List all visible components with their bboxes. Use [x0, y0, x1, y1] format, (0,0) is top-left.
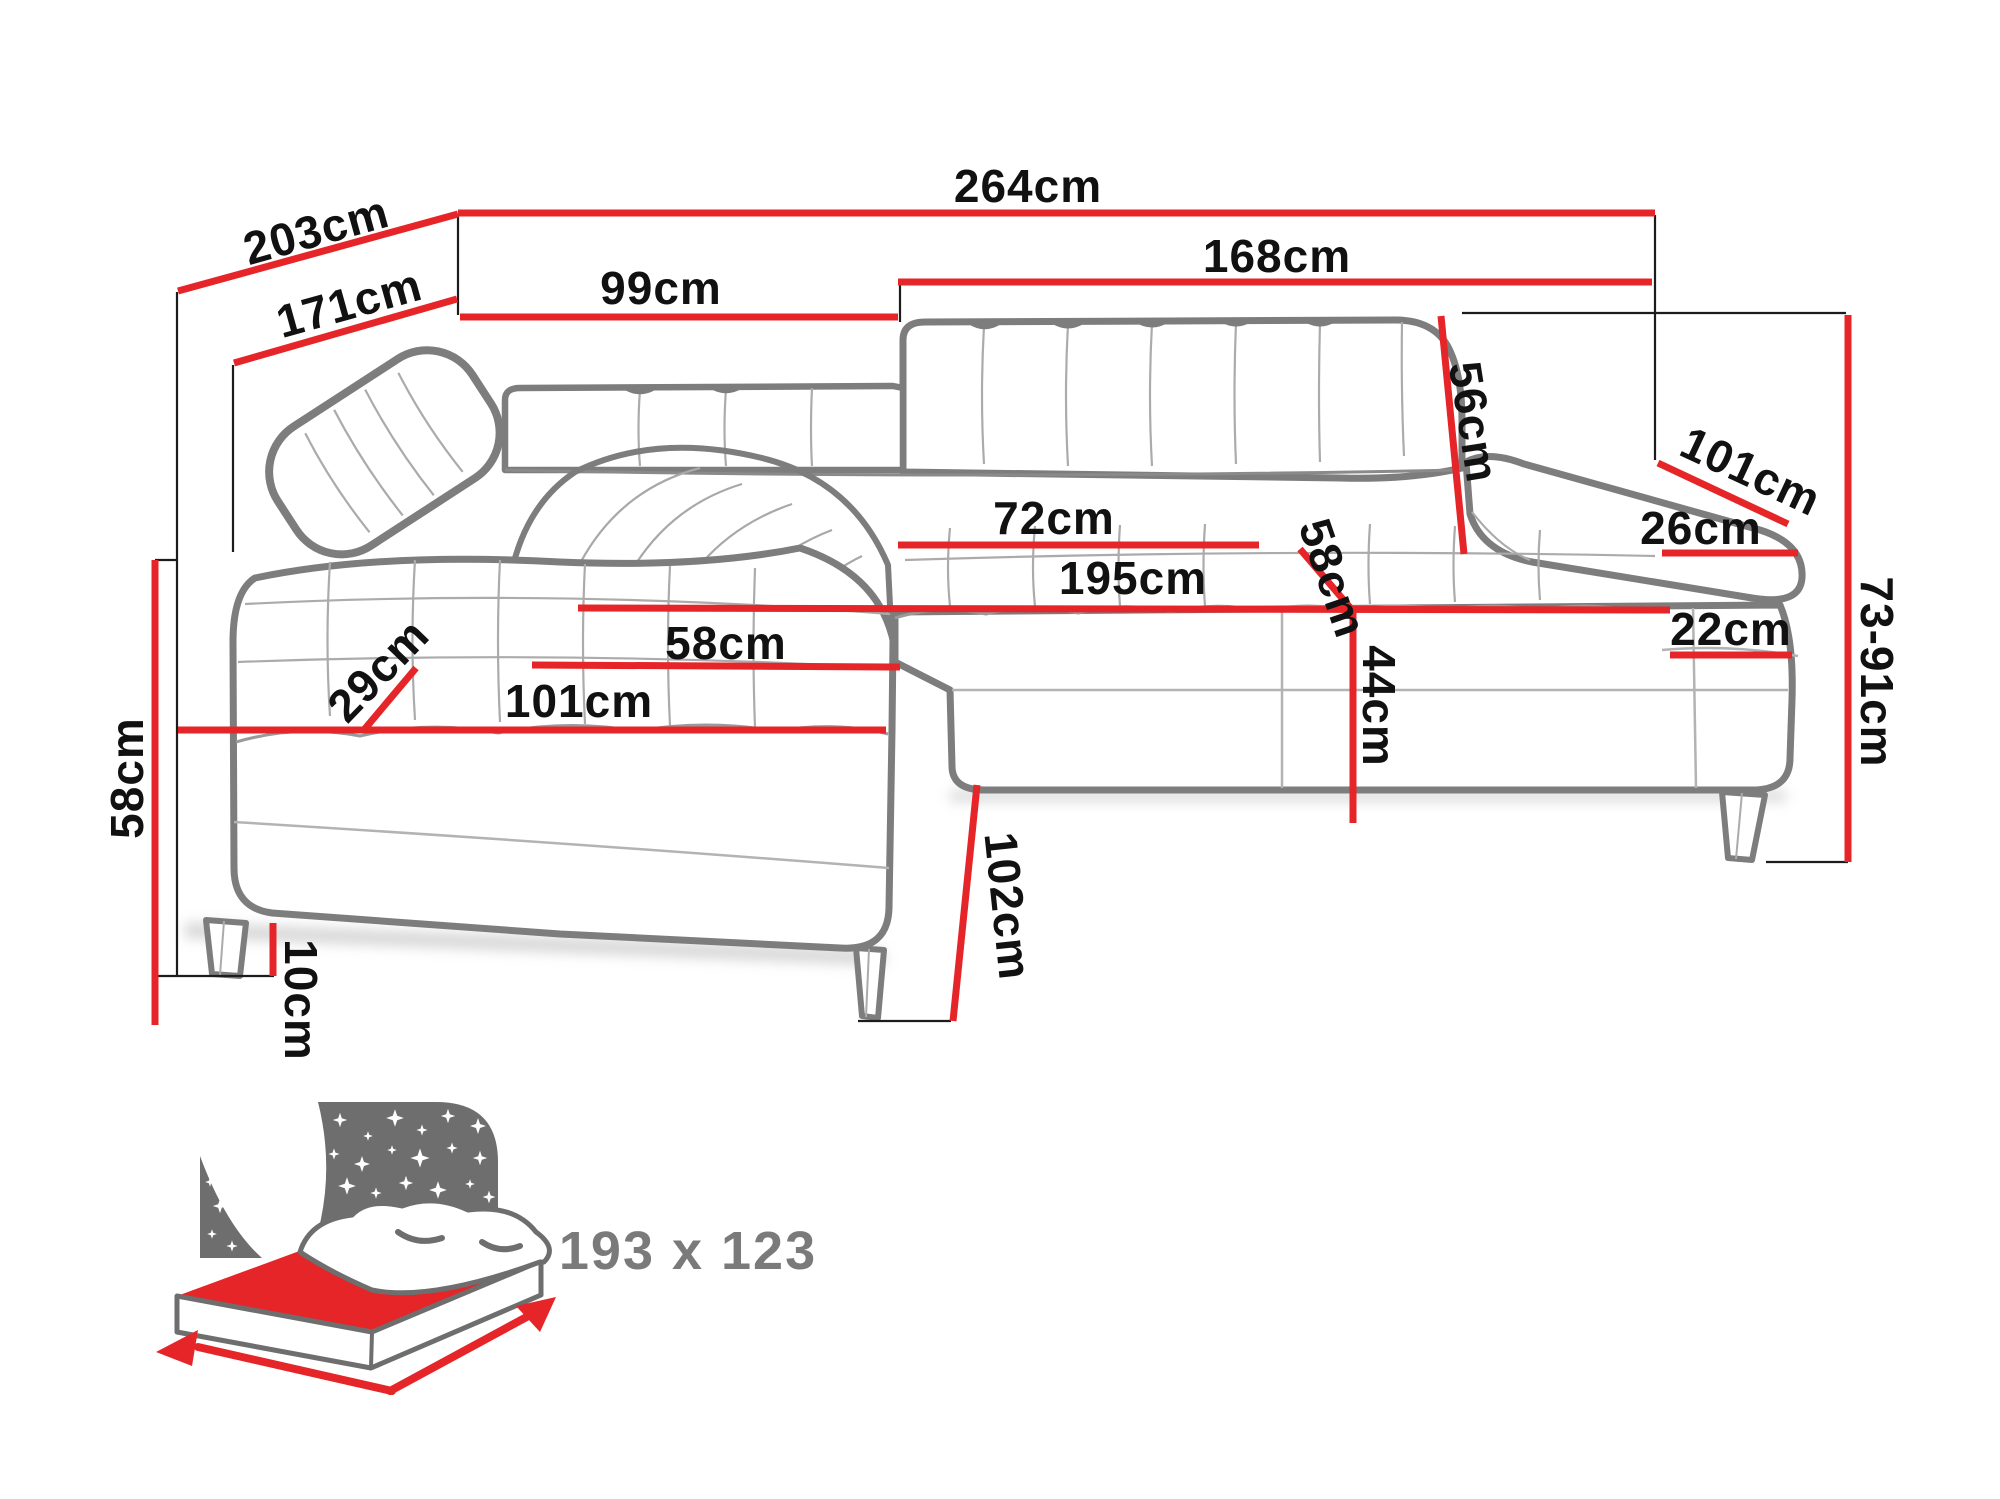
dim-label-total-width: 264cm [954, 163, 1102, 209]
sofa-dimension-diagram: 264cm 203cm 171cm 99cm 168cm 56cm 101cm … [0, 0, 2000, 1499]
dim-label-right-section-width: 168cm [1203, 233, 1351, 279]
sofa-leg-middle [856, 948, 884, 1018]
dim-label-seat-length: 195cm [1059, 555, 1207, 601]
dim-label-seat-depth-right: 72cm [993, 495, 1115, 541]
dim-label-chaise-seat-length: 101cm [505, 678, 653, 724]
sofa-backrest-right [903, 320, 1462, 478]
dim-label-armrest-base-width: 22cm [1670, 606, 1792, 652]
dim-label-chaise-back-width: 99cm [600, 265, 722, 311]
dim-label-seat-height: 44cm [1356, 645, 1402, 767]
sleeping-bed-icon [156, 1102, 556, 1391]
dim-label-chaise-seat-width: 58cm [665, 620, 787, 666]
sofa-leg-right [1722, 792, 1765, 860]
dim-label-leg-height: 10cm [278, 939, 324, 1061]
sofa-headrest-pillow [248, 330, 520, 575]
dim-line-seat-length [578, 608, 1670, 610]
sofa-backrest-left [505, 386, 903, 470]
sofa-leg-left [206, 920, 246, 976]
dim-line-chaise-front-depth [953, 785, 977, 1021]
dim-label-armrest-top-width: 26cm [1640, 505, 1762, 551]
sleeping-area-size-label: 193 x 123 [559, 1224, 817, 1278]
dim-label-height-range: 73-91cm [1854, 576, 1900, 767]
dim-label-chaise-side-height: 58cm [104, 717, 150, 839]
